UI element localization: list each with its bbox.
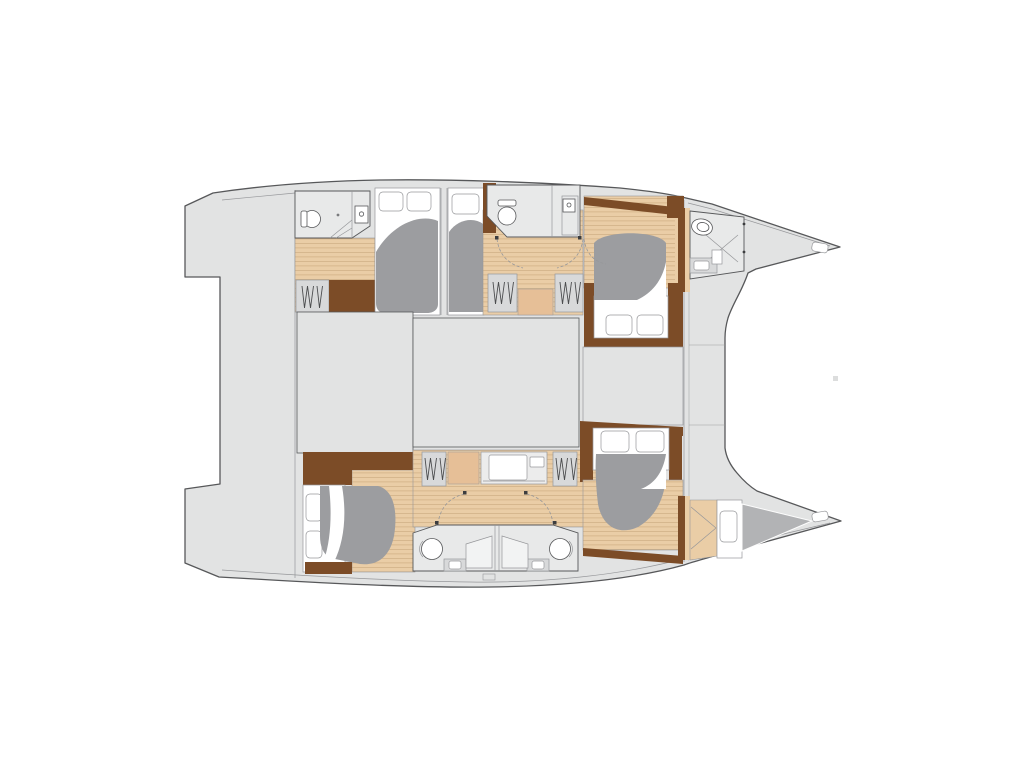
bed-rail [669, 428, 682, 483]
port-aft-double-berth [375, 188, 440, 315]
wood-trim [678, 208, 685, 292]
bed-rail [580, 429, 593, 482]
toilet-icon [550, 539, 571, 560]
pillow [306, 531, 322, 558]
pillow [637, 315, 663, 335]
saloon-panel-left [297, 312, 413, 453]
hull-window [407, 192, 431, 211]
catamaran-floor-plan [0, 0, 1024, 768]
port-wardrobe-right [555, 274, 583, 312]
port-aft-chest [329, 280, 375, 312]
stbd-forward-cabin [580, 421, 683, 564]
port-forward-cabin [584, 196, 684, 349]
stbd-wardrobe-left [422, 452, 446, 486]
port-wardrobe-left [488, 274, 517, 312]
hatch [720, 511, 737, 542]
stbd-desk [481, 452, 547, 484]
pillow [601, 431, 629, 452]
forward-panel [583, 347, 683, 425]
pillow [636, 431, 664, 452]
stbd-wardrobe-right [553, 452, 577, 486]
port-guest-berth [448, 188, 484, 315]
port-aft-head [295, 191, 370, 238]
wood-trim [678, 496, 685, 560]
toilet-icon [422, 539, 443, 560]
port-seat [518, 289, 553, 315]
hull-window [379, 192, 403, 211]
pillow [606, 315, 632, 335]
saloon-panel-center [413, 318, 579, 447]
stbd-aft-cabin [303, 452, 415, 574]
wood-trim [303, 470, 352, 485]
hull-window [452, 194, 479, 214]
wood-trim [305, 562, 352, 574]
wood-trim [303, 452, 415, 470]
port-mid-head [487, 185, 580, 237]
stbd-seat [448, 452, 479, 484]
toilet-icon [498, 207, 516, 225]
pillow [306, 494, 322, 521]
stray-mark [833, 376, 838, 381]
port-aft-wardrobe [296, 280, 329, 312]
